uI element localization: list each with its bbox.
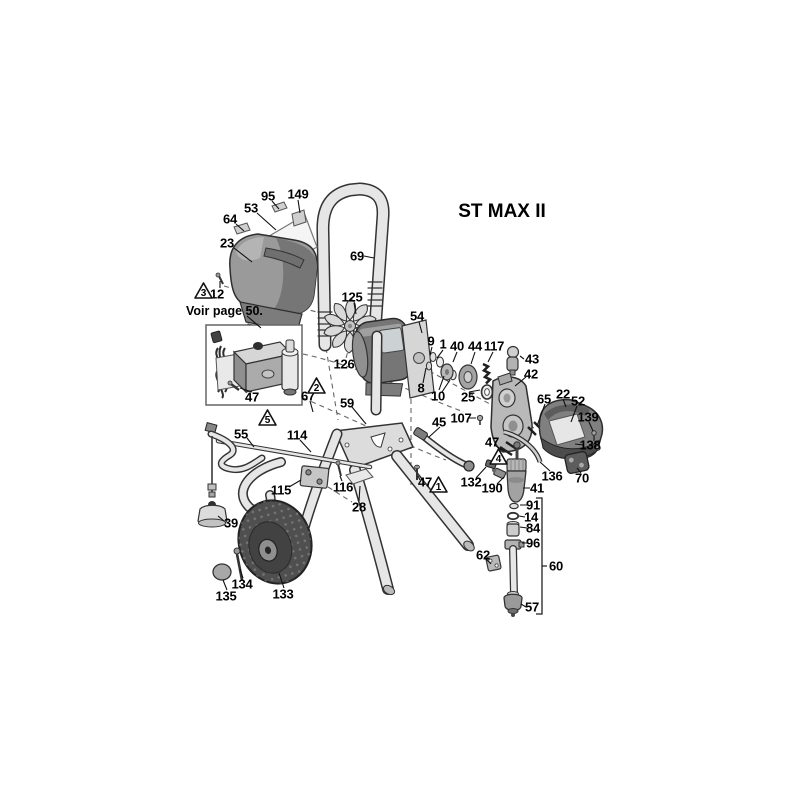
part-label-42: 42 — [524, 368, 538, 381]
part-label-69: 69 — [350, 250, 364, 263]
part-label-52: 52 — [571, 395, 585, 408]
screw-116-head — [336, 461, 340, 465]
part-label-117: 117 — [484, 340, 504, 353]
part-label-28: 28 — [352, 501, 366, 514]
parts-diagram-page: ST MAX II Voir page 50. 95 149 53 64 23 … — [0, 0, 800, 800]
part-label-133: 133 — [272, 588, 293, 601]
warning-triangle-2: 2 — [307, 377, 326, 394]
part-label-115: 115 — [271, 484, 291, 497]
part-label-65: 65 — [537, 393, 551, 406]
part-label-138: 138 — [579, 439, 600, 452]
part-label-23: 23 — [220, 237, 234, 250]
power-plug — [211, 331, 222, 343]
part-label-10: 10 — [431, 390, 445, 403]
warning-triangle-1: 1 — [429, 476, 448, 493]
part-label-135: 135 — [215, 590, 236, 603]
plate-hole — [388, 447, 392, 451]
warning-triangle-3: 3 — [194, 282, 213, 299]
spring-117 — [483, 364, 490, 384]
part-label-57: 57 — [525, 601, 539, 614]
part-label-9: 9 — [427, 335, 434, 348]
screw-47-frame-head — [415, 465, 420, 469]
gear-44-bore — [464, 372, 472, 383]
part-label-44: 44 — [468, 340, 482, 353]
warning-triangle-5: 5 — [258, 409, 277, 426]
part-label-70: 70 — [575, 472, 589, 485]
part-label-54: 54 — [410, 310, 424, 323]
part-label-116: 116 — [333, 481, 353, 494]
part-label-114: 114 — [287, 429, 307, 442]
axle-pin-134-head — [234, 548, 240, 554]
part-label-47-detail: 47 — [245, 391, 259, 404]
svg-text:5: 5 — [265, 415, 271, 426]
link-43-ball — [508, 347, 519, 358]
hose-fitting-right — [464, 461, 474, 471]
clamp-115 — [300, 466, 329, 489]
pressure-cylinder — [282, 352, 298, 390]
part-label-107: 107 — [450, 412, 471, 425]
oring-14 — [508, 513, 518, 519]
part-label-39: 39 — [224, 517, 238, 530]
plate-hole — [399, 438, 403, 442]
screw-47-detail-head — [228, 381, 232, 385]
part-label-22: 22 — [556, 388, 570, 401]
valve-bell-rim — [199, 519, 226, 527]
housing-bore-upper-inner — [504, 394, 511, 403]
suction-tube-fill — [513, 549, 514, 594]
washer-9 — [430, 353, 436, 362]
valve-fitting-lower — [209, 492, 215, 497]
part-label-43: 43 — [525, 353, 539, 366]
part-label-126: 126 — [333, 358, 354, 371]
diagram-title: ST MAX II — [458, 201, 546, 223]
part-label-53: 53 — [244, 202, 258, 215]
filter-band — [508, 477, 524, 483]
part-label-125: 125 — [341, 291, 362, 304]
adapter-84 — [507, 524, 519, 536]
washer-8 — [426, 362, 431, 370]
part-label-139: 139 — [577, 411, 598, 424]
valve-rod-tip — [514, 442, 520, 448]
part-label-1: 1 — [439, 338, 446, 351]
part-label-40: 40 — [450, 340, 464, 353]
part-label-55: 55 — [234, 428, 248, 441]
washer-1 — [437, 357, 444, 367]
pressure-cylinder-top — [286, 340, 294, 352]
diagram-canvas — [0, 0, 800, 800]
oring-91 — [510, 503, 518, 508]
gear-40-bore — [445, 369, 449, 375]
filter-body-41 — [507, 471, 526, 502]
svg-text:1: 1 — [436, 482, 442, 493]
part-label-60: 60 — [549, 560, 563, 573]
fan-hub-bore — [348, 324, 352, 328]
part-label-25: 25 — [461, 391, 475, 404]
part-label-136: 136 — [541, 470, 562, 483]
see-page-note: Voir page 50. — [186, 304, 263, 318]
bearing-25-bore — [485, 389, 490, 396]
part-label-96: 96 — [526, 537, 540, 550]
pressure-hose — [413, 427, 474, 471]
screw-107 — [477, 415, 482, 420]
part-label-132: 132 — [460, 476, 481, 489]
part-label-64: 64 — [223, 213, 237, 226]
mount-plate-bore — [414, 353, 425, 364]
part-label-95: 95 — [261, 190, 275, 203]
screw-116 — [338, 464, 341, 476]
strainer-57-nub — [511, 613, 515, 617]
wheel-hardware — [213, 548, 242, 580]
valve-fitting-upper — [208, 484, 216, 490]
pump-knob — [253, 342, 263, 350]
svg-text:2: 2 — [314, 383, 320, 394]
pressure-cylinder-base — [284, 389, 296, 395]
screw-139 — [592, 431, 596, 435]
motor-window — [379, 327, 404, 353]
plate-hole — [345, 443, 349, 447]
pump-side-oval — [262, 370, 274, 378]
hub-cap-135 — [213, 564, 231, 580]
warning-triangle-4: 4 — [489, 448, 508, 465]
screw-12-head — [216, 273, 220, 277]
part-label-47-pump: 47 — [485, 436, 499, 449]
part-label-41: 41 — [530, 482, 544, 495]
part-label-62: 62 — [476, 549, 490, 562]
svg-text:4: 4 — [496, 454, 502, 465]
part-label-8: 8 — [417, 382, 424, 395]
part-label-84: 84 — [526, 522, 540, 535]
link-43-body — [507, 357, 518, 371]
part-label-45: 45 — [432, 416, 446, 429]
part-label-190: 190 — [481, 482, 502, 495]
svg-text:3: 3 — [201, 288, 207, 299]
part-label-59: 59 — [340, 397, 354, 410]
housing-bore-lower-inner — [509, 421, 518, 432]
part-label-149: 149 — [287, 188, 308, 201]
strainer-57-rim — [508, 609, 518, 614]
